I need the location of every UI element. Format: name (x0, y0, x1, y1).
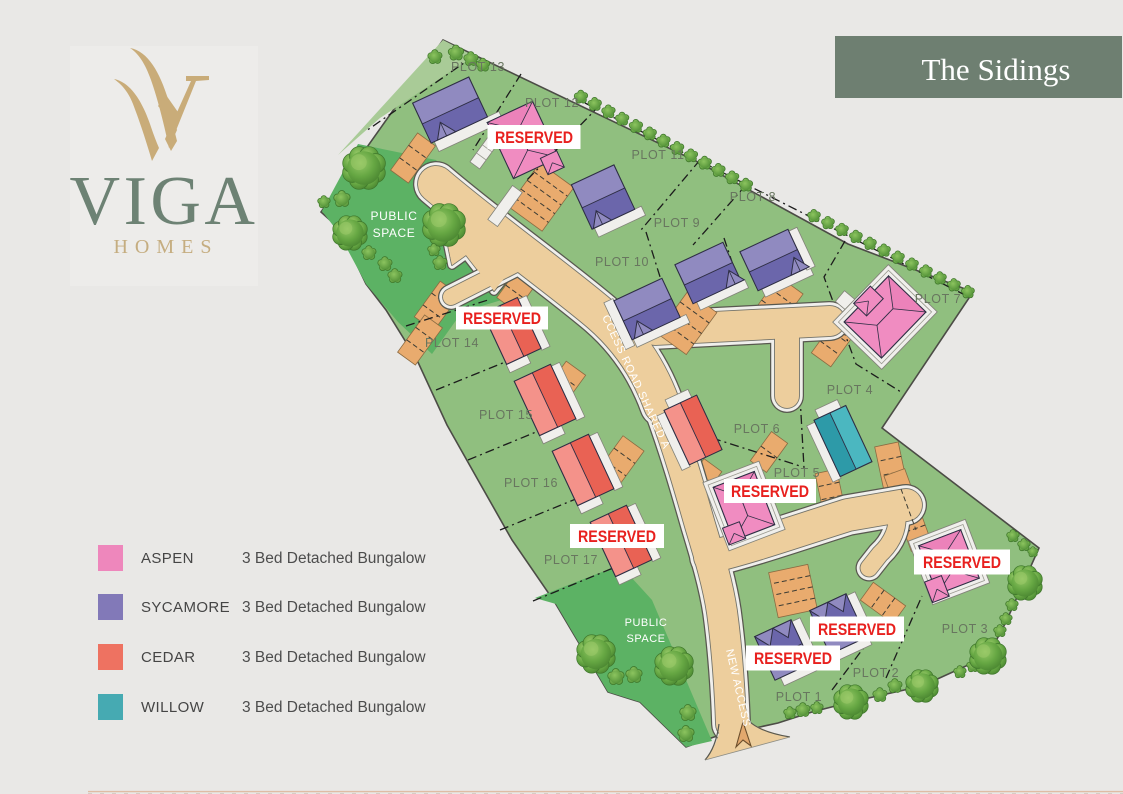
svg-text:PUBLIC: PUBLIC (371, 209, 418, 223)
svg-text:PLOT 13: PLOT 13 (451, 60, 505, 74)
svg-text:PLOT 4: PLOT 4 (827, 383, 873, 397)
svg-text:RESERVED: RESERVED (731, 482, 809, 501)
svg-text:3 Bed Detached Bungalow: 3 Bed Detached Bungalow (242, 649, 426, 666)
svg-text:PLOT 7: PLOT 7 (915, 292, 961, 306)
svg-text:RESERVED: RESERVED (495, 128, 573, 147)
svg-text:3 Bed Detached Bungalow: 3 Bed Detached Bungalow (242, 599, 426, 616)
svg-text:PLOT 17: PLOT 17 (544, 553, 598, 567)
svg-text:PUBLIC: PUBLIC (625, 617, 668, 629)
svg-text:PLOT 12: PLOT 12 (525, 96, 579, 110)
svg-text:RESERVED: RESERVED (578, 527, 656, 546)
svg-text:HOMES: HOMES (113, 236, 218, 258)
svg-text:PLOT 10: PLOT 10 (595, 255, 649, 269)
svg-text:PLOT 14: PLOT 14 (425, 336, 479, 350)
svg-text:PLOT 16: PLOT 16 (504, 476, 558, 490)
svg-text:RESERVED: RESERVED (923, 553, 1001, 572)
svg-text:RESERVED: RESERVED (754, 649, 832, 668)
svg-text:PLOT 5: PLOT 5 (774, 466, 820, 480)
svg-text:RESERVED: RESERVED (463, 309, 541, 328)
svg-text:ASPEN: ASPEN (141, 550, 194, 567)
svg-text:PLOT 3: PLOT 3 (942, 622, 988, 636)
svg-text:3 Bed Detached Bungalow: 3 Bed Detached Bungalow (242, 550, 426, 567)
svg-text:PLOT 6: PLOT 6 (734, 422, 780, 436)
svg-text:The Sidings: The Sidings (922, 52, 1071, 87)
svg-text:CEDAR: CEDAR (141, 649, 196, 666)
svg-text:3 Bed Detached Bungalow: 3 Bed Detached Bungalow (242, 699, 426, 716)
svg-text:VIGA: VIGA (70, 163, 259, 240)
svg-text:SPACE: SPACE (627, 633, 666, 645)
svg-text:PLOT 1: PLOT 1 (776, 690, 822, 704)
svg-text:RESERVED: RESERVED (818, 620, 896, 639)
svg-text:SYCAMORE: SYCAMORE (141, 599, 230, 616)
svg-text:PLOT 15: PLOT 15 (479, 408, 533, 422)
svg-text:PLOT 11: PLOT 11 (631, 148, 684, 162)
svg-text:SPACE: SPACE (373, 226, 416, 240)
svg-text:WILLOW: WILLOW (141, 699, 205, 716)
svg-text:PLOT 2: PLOT 2 (853, 666, 899, 680)
svg-text:PLOT 9: PLOT 9 (654, 216, 700, 230)
svg-text:PLOT 8: PLOT 8 (730, 190, 776, 204)
